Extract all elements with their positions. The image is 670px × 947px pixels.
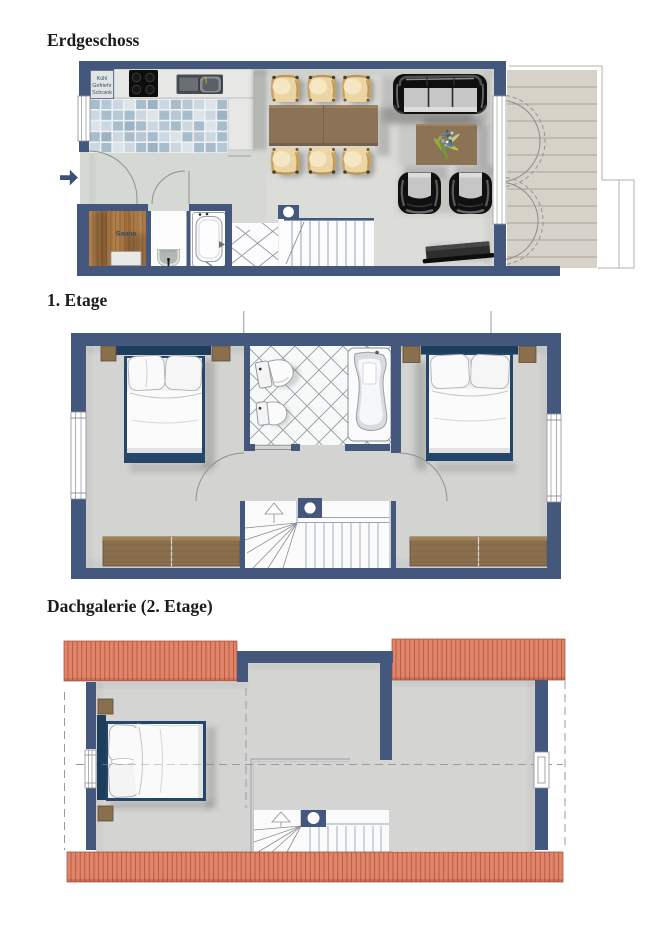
svg-text:Kühl: Kühl (97, 76, 108, 82)
svg-text:Sauna: Sauna (116, 231, 137, 238)
svg-text:Gefriehr: Gefriehr (92, 83, 112, 89)
svg-text:Schrank: Schrank (92, 90, 112, 96)
